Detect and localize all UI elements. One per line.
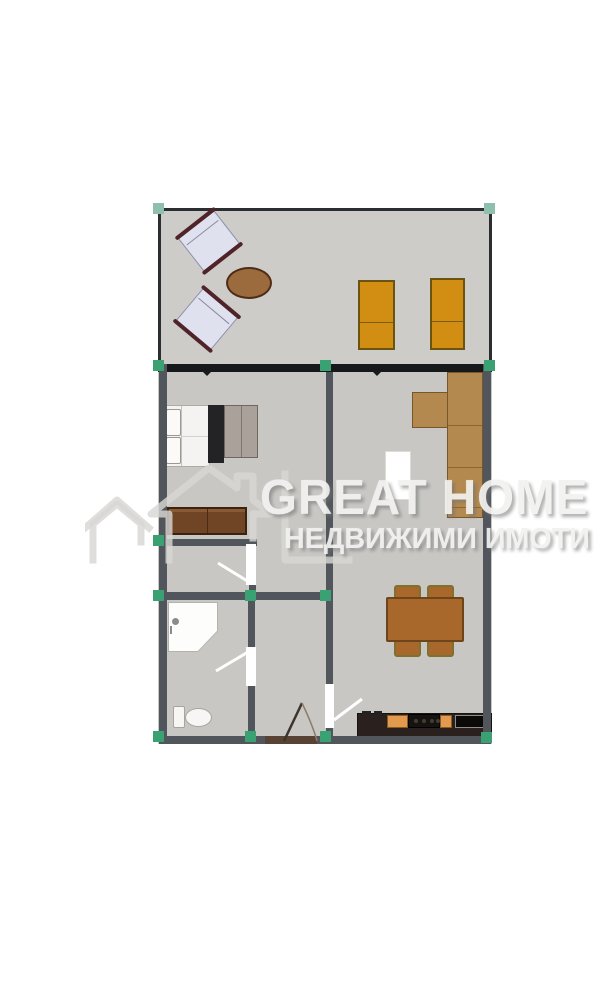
bed-crease [182, 436, 208, 437]
floor-plan-image: GREAT HOME НЕДВИЖИМИ ИМОТИ [0, 0, 616, 1000]
shower-pipe [170, 626, 172, 634]
corner-sofa-chaise [412, 392, 448, 428]
corner-marker [481, 732, 492, 743]
sun-lounger [430, 278, 465, 350]
dining-table [386, 597, 464, 642]
logo-small-roof [85, 500, 149, 528]
pillow [166, 409, 181, 436]
watermark-subtitle: НЕДВИЖИМИ ИМОТИ [284, 525, 590, 554]
corner-marker [153, 590, 164, 601]
sofa-seam [448, 467, 482, 468]
corner-marker [484, 360, 495, 371]
cutting-board [387, 715, 408, 728]
bathroom-door-leaf [246, 647, 256, 686]
corner-marker [153, 731, 164, 742]
corner-marker [320, 360, 331, 371]
corner-marker [484, 203, 495, 214]
wall-bathroom-upper [248, 600, 255, 648]
faucet [374, 711, 382, 715]
stove [408, 714, 440, 728]
watermark-title: GREAT HOME [260, 474, 588, 523]
logo-big-house [151, 468, 271, 560]
corner-marker [153, 203, 164, 214]
window-opening-tick [372, 371, 382, 376]
stove-burners [414, 719, 418, 723]
lounger-seam [360, 322, 393, 323]
corner-marker [245, 590, 256, 601]
window-opening-tick [202, 371, 212, 376]
living-door-leaf [325, 684, 334, 728]
sofa-seam [448, 425, 482, 426]
cutting-board [440, 715, 452, 728]
wall-bottom-right [317, 736, 491, 744]
entry-threshold [265, 736, 317, 744]
toilet-tank [173, 706, 185, 728]
lounger-seam [432, 321, 463, 322]
corner-marker [153, 360, 164, 371]
toilet-bowl [185, 708, 212, 727]
corner-marker [245, 731, 256, 742]
sun-lounger [358, 280, 395, 350]
shower-head [172, 618, 179, 625]
corner-marker [320, 731, 331, 742]
terrace-round-table [226, 267, 272, 299]
corner-marker [320, 590, 331, 601]
faucet [362, 711, 371, 715]
